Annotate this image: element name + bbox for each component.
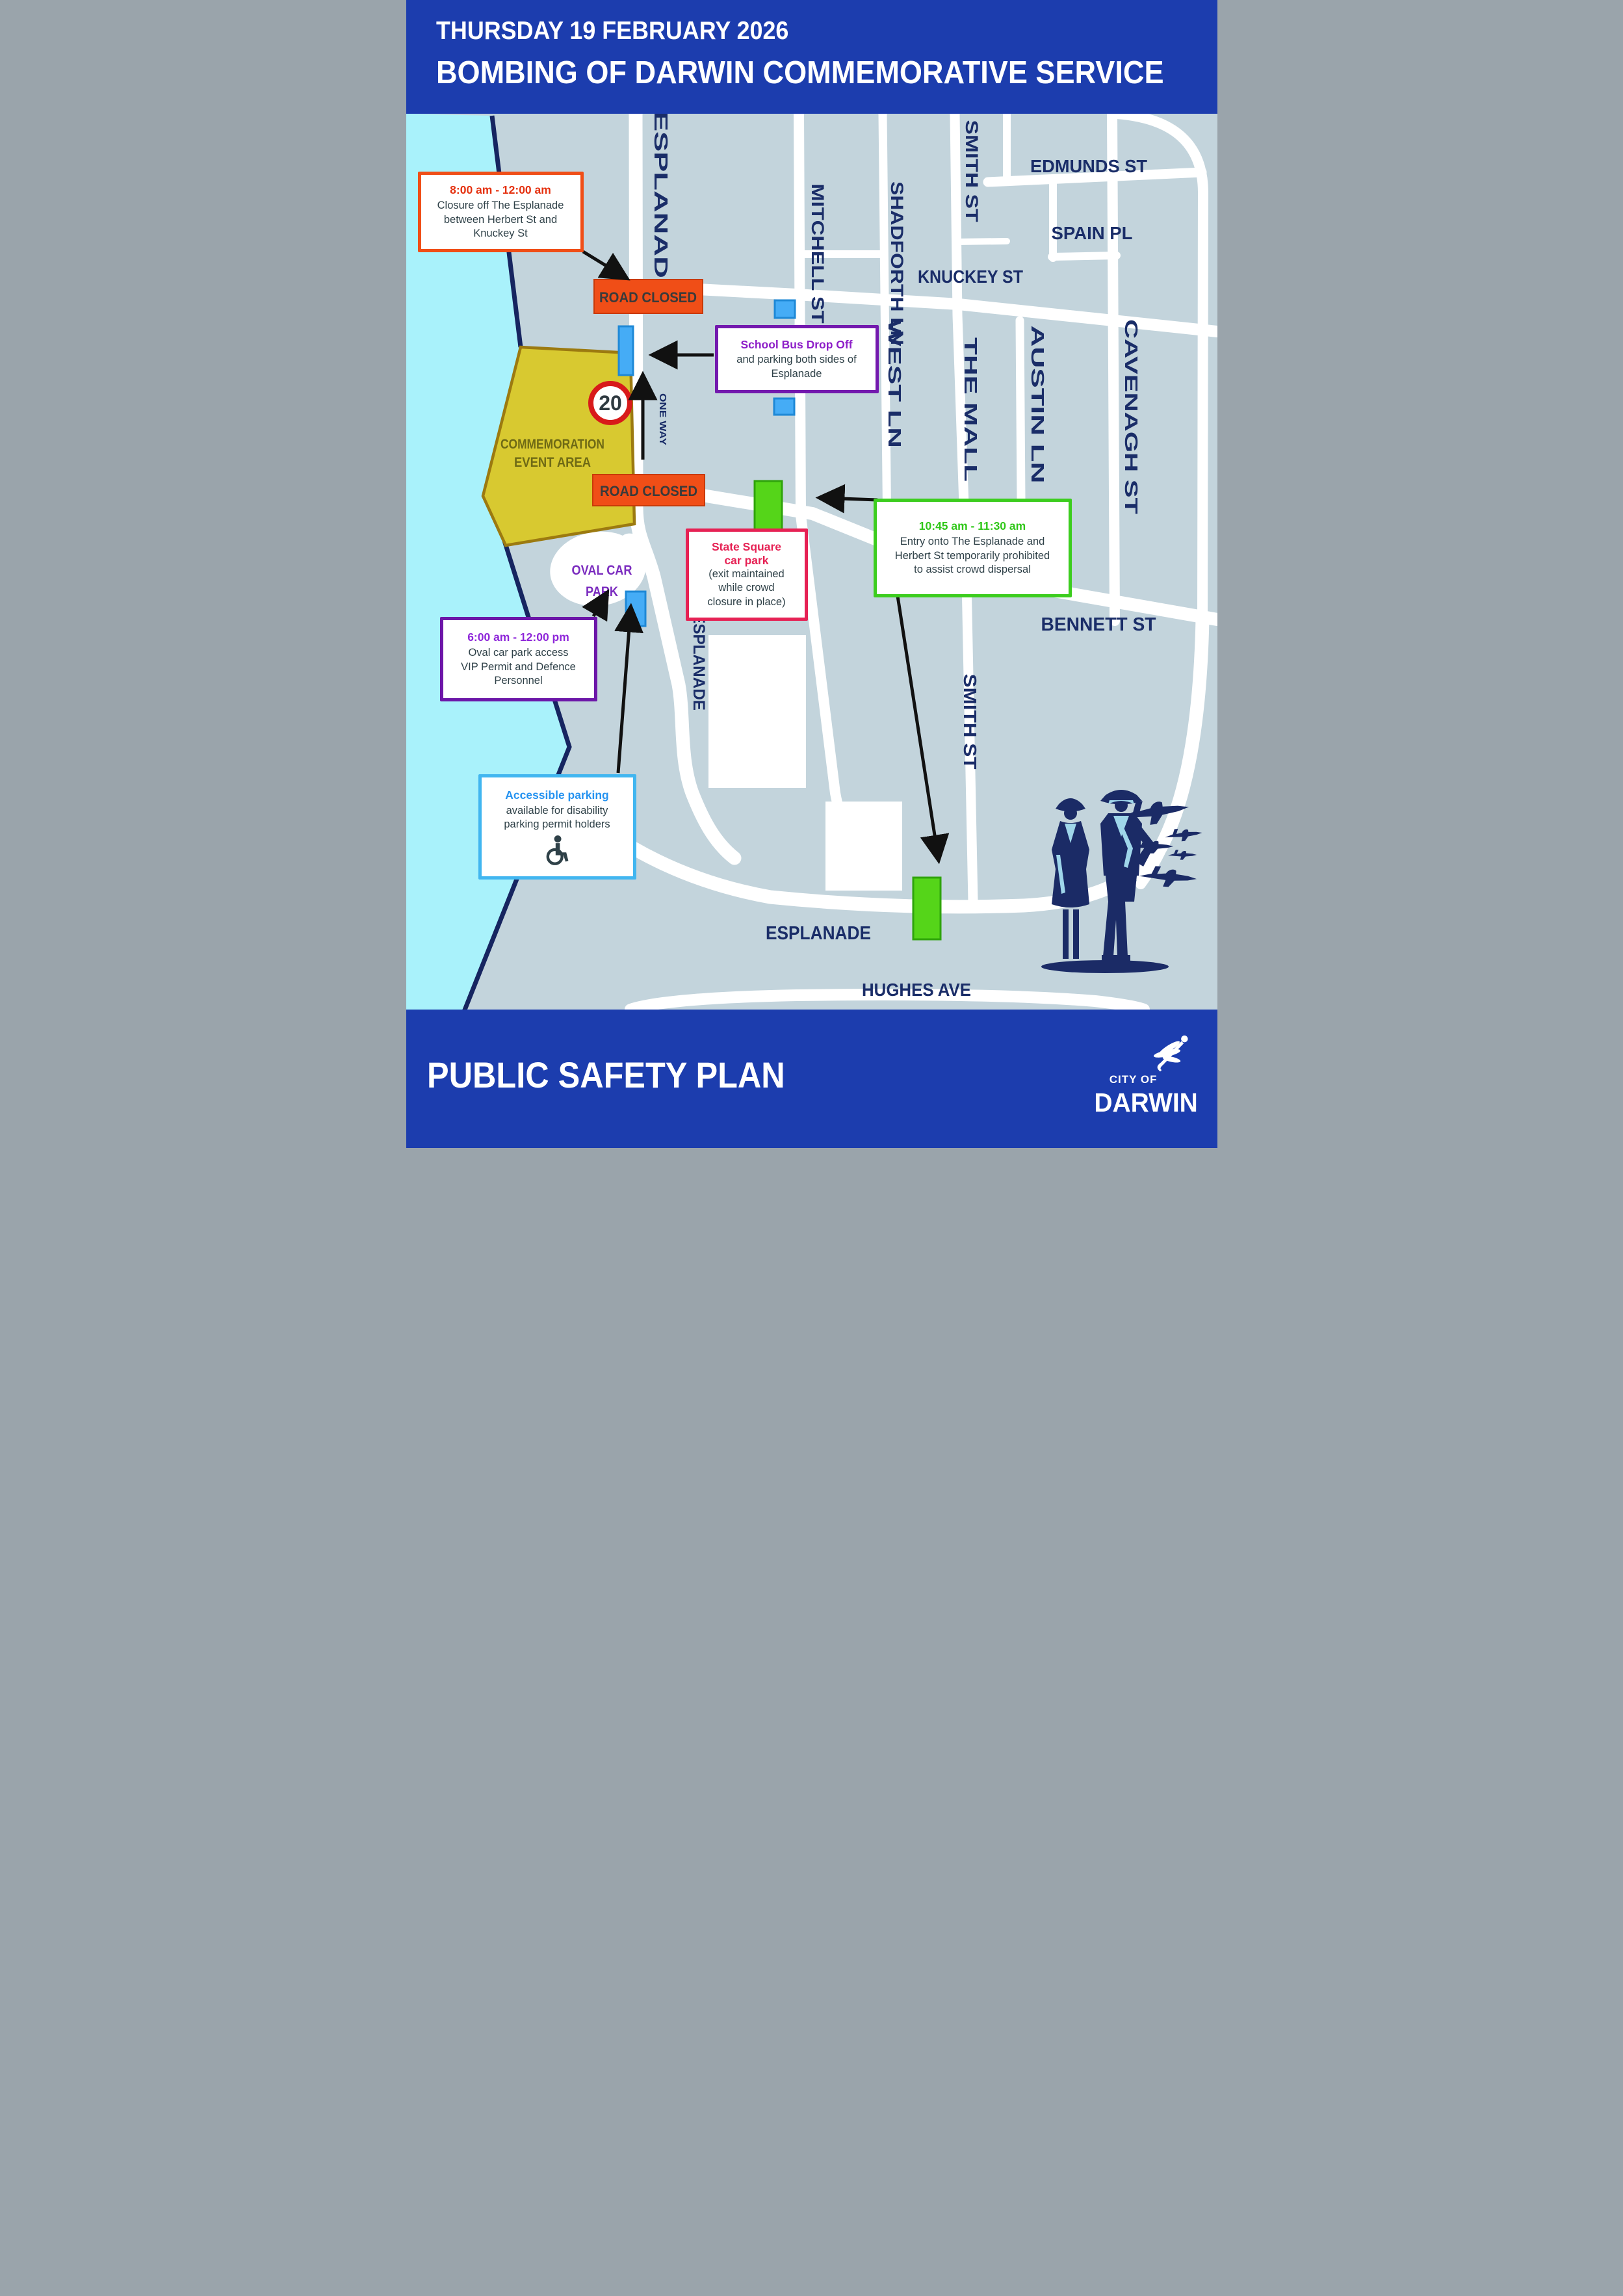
arrow-dispersal-herbert bbox=[824, 498, 877, 500]
callout-crowd-dispersal: 10:45 am - 11:30 am Entry onto The Espla… bbox=[874, 499, 1072, 597]
oval-access-time: 6:00 am - 12:00 pm bbox=[447, 630, 590, 645]
event-date: THURSDAY 19 FEBRUARY 2026 bbox=[436, 17, 788, 46]
parking-marker-esplanade bbox=[619, 326, 633, 375]
callout-oval-access: 6:00 am - 12:00 pm Oval car park access … bbox=[440, 617, 597, 701]
accessible-title: Accessible parking bbox=[486, 788, 629, 803]
state-square-line: while crowd bbox=[693, 581, 801, 595]
callout-state-square: State Square car park (exit maintained w… bbox=[686, 528, 808, 621]
entry-marker-herbert bbox=[755, 481, 782, 534]
accessible-line: available for disability bbox=[486, 804, 629, 818]
oval-access-line: VIP Permit and Defence bbox=[447, 660, 590, 674]
street-label-edmunds: EDMUNDS ST bbox=[1030, 156, 1147, 176]
building-block bbox=[825, 802, 902, 891]
street-label-cavenagh: CAVENAGH ST bbox=[1121, 319, 1141, 514]
street-label-smith-lower: SMITH ST bbox=[960, 674, 980, 770]
street-label-bennett: BENNETT ST bbox=[1041, 614, 1156, 635]
dispersal-line: Herbert St temporarily prohibited bbox=[881, 549, 1065, 563]
state-square-title: State Square bbox=[693, 540, 801, 554]
closure-line: Closure off The Esplanade bbox=[425, 199, 577, 213]
state-square-line: (exit maintained bbox=[693, 567, 801, 581]
oval-access-line: Personnel bbox=[447, 674, 590, 688]
wheelchair-icon bbox=[542, 835, 572, 866]
street-label-esplanade-bottom: ESPLANADE bbox=[766, 923, 871, 944]
school-bus-title: School Bus Drop Off bbox=[722, 337, 872, 352]
state-square-title: car park bbox=[693, 554, 801, 567]
road-smith-stub bbox=[956, 241, 1007, 242]
closure-time: 8:00 am - 12:00 am bbox=[425, 183, 577, 198]
street-label-spain: SPAIN PL bbox=[1051, 223, 1132, 243]
logo-darwin: DARWIN bbox=[1094, 1088, 1197, 1118]
state-square-line: closure in place) bbox=[693, 595, 801, 609]
event-area-label-line2: EVENT AREA bbox=[514, 455, 591, 470]
one-way-text: ONE WAY bbox=[657, 393, 668, 445]
oval-access-line: Oval car park access bbox=[447, 646, 590, 660]
callout-accessible-parking: Accessible parking available for disabil… bbox=[478, 774, 636, 880]
street-label-hughes: HUGHES AVE bbox=[862, 980, 971, 1000]
street-label-the-mall: THE MALL bbox=[961, 337, 981, 482]
city-of-darwin-logo: CITY OF DARWIN bbox=[1068, 1029, 1198, 1133]
school-bus-line: Esplanade bbox=[722, 367, 872, 381]
dispersal-time: 10:45 am - 11:30 am bbox=[881, 519, 1065, 534]
school-bus-line: and parking both sides of bbox=[722, 353, 872, 367]
event-area-label-line1: COMMEMORATION bbox=[500, 437, 604, 452]
street-label-esplanade-top: ESPLANADE bbox=[650, 114, 671, 298]
oval-car-park-label-line1: OVAL CAR bbox=[571, 563, 632, 578]
public-safety-plan-poster: THURSDAY 19 FEBRUARY 2026 BOMBING OF DAR… bbox=[406, 0, 1217, 1148]
street-label-smith-top: SMITH ST bbox=[962, 120, 981, 223]
parking-marker-mitchell bbox=[774, 398, 794, 415]
street-label-austin: AUSTIN LN bbox=[1028, 326, 1048, 484]
accessible-line: parking permit holders bbox=[486, 818, 629, 831]
street-label-mitchell: MITCHELL ST bbox=[808, 184, 827, 324]
entry-marker-esplanade bbox=[913, 878, 941, 939]
callout-school-bus: School Bus Drop Off and parking both sid… bbox=[715, 325, 879, 393]
parking-marker-knuckey bbox=[775, 300, 795, 318]
state-square-building bbox=[708, 635, 806, 788]
speed-sign-value: 20 bbox=[599, 391, 622, 415]
callout-esplanade-closure: 8:00 am - 12:00 am Closure off The Espla… bbox=[418, 172, 584, 252]
logo-city-of: CITY OF bbox=[1110, 1073, 1158, 1086]
footer-title: PUBLIC SAFETY PLAN bbox=[427, 1054, 785, 1096]
dispersal-line: Entry onto The Esplanade and bbox=[881, 535, 1065, 549]
road-spain bbox=[1052, 255, 1117, 257]
map-area: COMMEMORATION EVENT AREA ESPLANADE MITCH… bbox=[406, 114, 1217, 1010]
oval-car-park-label-line2: PARK bbox=[586, 584, 618, 599]
dispersal-line: to assist crowd dispersal bbox=[881, 563, 1065, 577]
header-banner: THURSDAY 19 FEBRUARY 2026 BOMBING OF DAR… bbox=[406, 0, 1217, 114]
dragonfly-icon bbox=[1150, 1029, 1198, 1075]
road-cavenagh bbox=[1112, 114, 1115, 621]
street-label-west-ln: WEST LN bbox=[885, 319, 905, 448]
closure-line: between Herbert St and bbox=[425, 213, 577, 227]
road-closed-text-south: ROAD CLOSED bbox=[600, 483, 697, 499]
speed-limit-sign: 20 bbox=[591, 384, 630, 423]
closure-line: Knuckey St bbox=[425, 227, 577, 241]
street-label-esplanade-mid: ESPLANADE bbox=[690, 613, 708, 711]
footer-banner: PUBLIC SAFETY PLAN CITY OF DARWIN bbox=[406, 1010, 1217, 1148]
page-title: BOMBING OF DARWIN COMMEMORATIVE SERVICE bbox=[436, 55, 1164, 91]
street-label-knuckey: KNUCKEY ST bbox=[918, 267, 1023, 287]
road-closed-text-north: ROAD CLOSED bbox=[599, 289, 697, 306]
